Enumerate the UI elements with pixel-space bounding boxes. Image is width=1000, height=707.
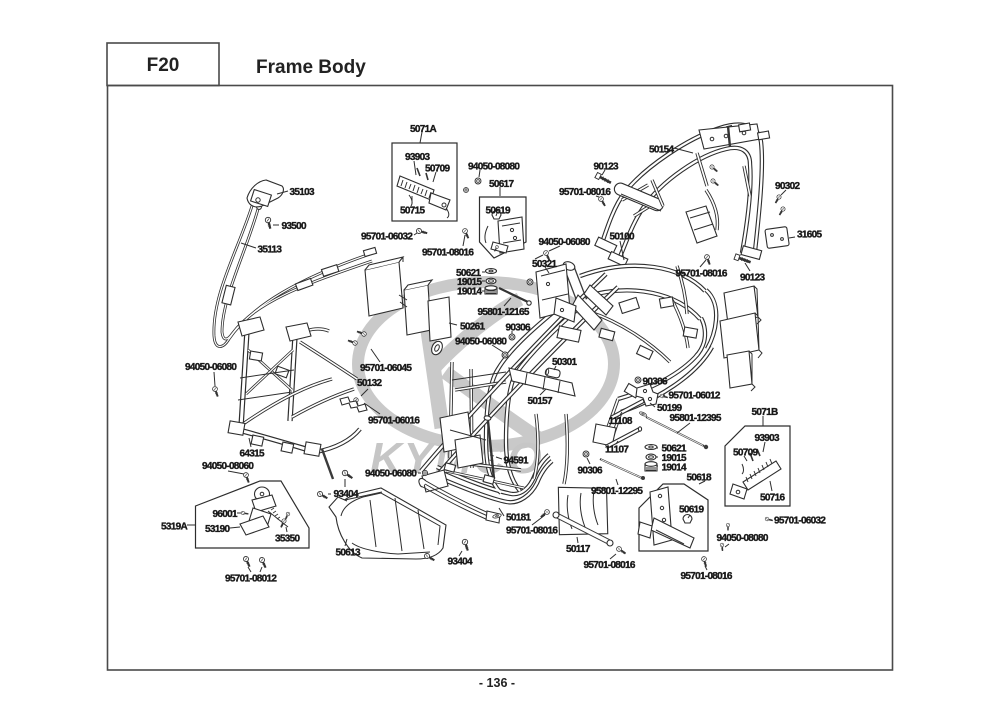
svg-text:95701-08016: 95701-08016 bbox=[422, 248, 474, 259]
svg-text:95701-08016: 95701-08016 bbox=[681, 571, 733, 582]
svg-text:50132: 50132 bbox=[357, 378, 382, 389]
svg-text:50716: 50716 bbox=[760, 493, 785, 504]
svg-text:50321: 50321 bbox=[532, 259, 557, 270]
svg-text:93404: 93404 bbox=[334, 489, 359, 500]
svg-text:31605: 31605 bbox=[797, 230, 822, 241]
svg-text:90302: 90302 bbox=[775, 181, 800, 192]
svg-text:94050-06080: 94050-06080 bbox=[365, 469, 417, 480]
svg-text:50617: 50617 bbox=[489, 179, 514, 190]
svg-text:95701-06012: 95701-06012 bbox=[669, 391, 721, 402]
svg-text:- 136 -: - 136 - bbox=[479, 676, 515, 690]
svg-text:95801-12395: 95801-12395 bbox=[670, 413, 722, 424]
svg-text:90123: 90123 bbox=[740, 273, 765, 284]
svg-text:35113: 35113 bbox=[258, 245, 283, 256]
svg-text:93903: 93903 bbox=[755, 433, 780, 444]
svg-text:50301: 50301 bbox=[552, 357, 577, 368]
svg-text:90123: 90123 bbox=[594, 162, 619, 173]
svg-text:95701-08016: 95701-08016 bbox=[506, 526, 558, 537]
svg-text:94050-08080: 94050-08080 bbox=[717, 533, 769, 544]
svg-text:64315: 64315 bbox=[240, 449, 265, 460]
svg-text:90306: 90306 bbox=[578, 466, 603, 477]
svg-text:95801-12295: 95801-12295 bbox=[591, 486, 643, 497]
svg-text:35350: 35350 bbox=[275, 534, 300, 545]
svg-text:95701-06032: 95701-06032 bbox=[361, 232, 413, 243]
svg-text:90306: 90306 bbox=[506, 323, 531, 334]
svg-text:11108: 11108 bbox=[609, 416, 633, 427]
svg-text:94050-06080: 94050-06080 bbox=[185, 362, 237, 373]
svg-text:50261: 50261 bbox=[460, 322, 485, 333]
svg-text:50613: 50613 bbox=[336, 548, 361, 559]
svg-text:50181: 50181 bbox=[506, 513, 531, 524]
svg-text:94050-08080: 94050-08080 bbox=[468, 162, 520, 173]
svg-text:50619: 50619 bbox=[679, 505, 704, 516]
svg-text:95701-06045: 95701-06045 bbox=[360, 363, 412, 374]
svg-text:11107: 11107 bbox=[605, 445, 629, 456]
svg-text:50709: 50709 bbox=[733, 448, 758, 459]
svg-text:94591: 94591 bbox=[504, 456, 529, 467]
svg-text:94050-06080: 94050-06080 bbox=[539, 237, 591, 248]
svg-text:35103: 35103 bbox=[290, 187, 315, 198]
svg-text:95701-08016: 95701-08016 bbox=[584, 560, 636, 571]
svg-text:50117: 50117 bbox=[566, 544, 591, 555]
svg-text:5071B: 5071B bbox=[752, 407, 778, 418]
svg-text:95701-08012: 95701-08012 bbox=[225, 574, 277, 585]
svg-text:50715: 50715 bbox=[400, 206, 425, 217]
svg-text:95801-12165: 95801-12165 bbox=[478, 307, 530, 318]
svg-text:50157: 50157 bbox=[528, 396, 553, 407]
svg-text:93903: 93903 bbox=[405, 152, 430, 163]
svg-text:93404: 93404 bbox=[448, 557, 473, 568]
svg-text:53190: 53190 bbox=[205, 524, 230, 535]
svg-text:50709: 50709 bbox=[425, 164, 450, 175]
svg-text:5319A: 5319A bbox=[161, 522, 187, 533]
svg-text:50154: 50154 bbox=[649, 145, 674, 156]
svg-text:94050-06080: 94050-06080 bbox=[455, 337, 507, 348]
svg-text:19014: 19014 bbox=[457, 287, 482, 298]
svg-text:90306: 90306 bbox=[643, 377, 668, 388]
svg-text:50618: 50618 bbox=[687, 473, 712, 484]
svg-text:95701-06032: 95701-06032 bbox=[774, 516, 826, 527]
svg-text:95701-06016: 95701-06016 bbox=[368, 416, 420, 427]
svg-text:50100: 50100 bbox=[610, 232, 635, 243]
svg-text:94050-08060: 94050-08060 bbox=[202, 461, 254, 472]
svg-text:96001: 96001 bbox=[213, 509, 238, 520]
svg-text:Frame Body: Frame Body bbox=[256, 57, 366, 78]
svg-text:95701-08016: 95701-08016 bbox=[676, 269, 728, 280]
svg-text:19014: 19014 bbox=[662, 463, 687, 474]
svg-text:5071A: 5071A bbox=[410, 124, 436, 135]
svg-text:50619: 50619 bbox=[486, 206, 511, 217]
svg-text:93500: 93500 bbox=[282, 221, 307, 232]
svg-text:F20: F20 bbox=[147, 55, 180, 76]
svg-text:95701-08016: 95701-08016 bbox=[559, 187, 611, 198]
